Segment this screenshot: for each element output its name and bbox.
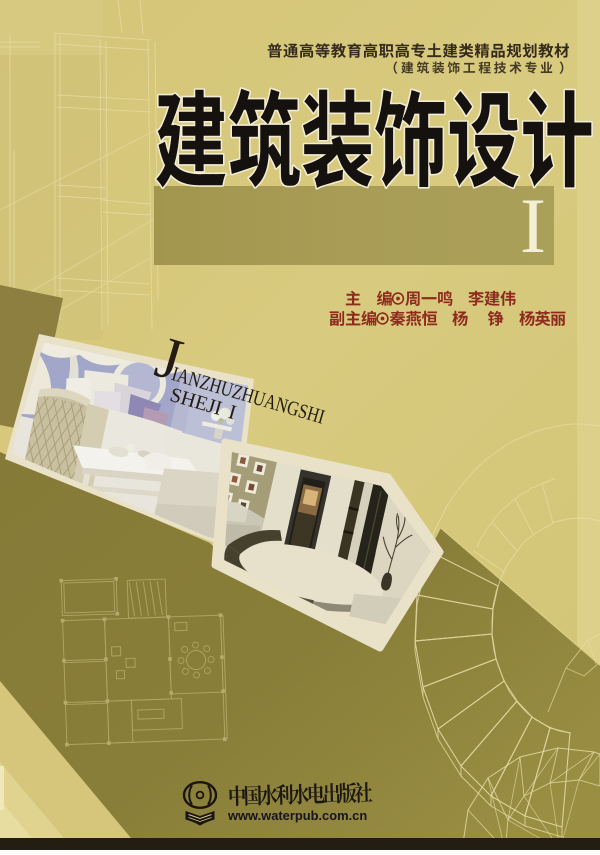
svg-text:I: I: [520, 182, 546, 269]
svg-text:www.waterpub.com.cn: www.waterpub.com.cn: [227, 808, 367, 823]
